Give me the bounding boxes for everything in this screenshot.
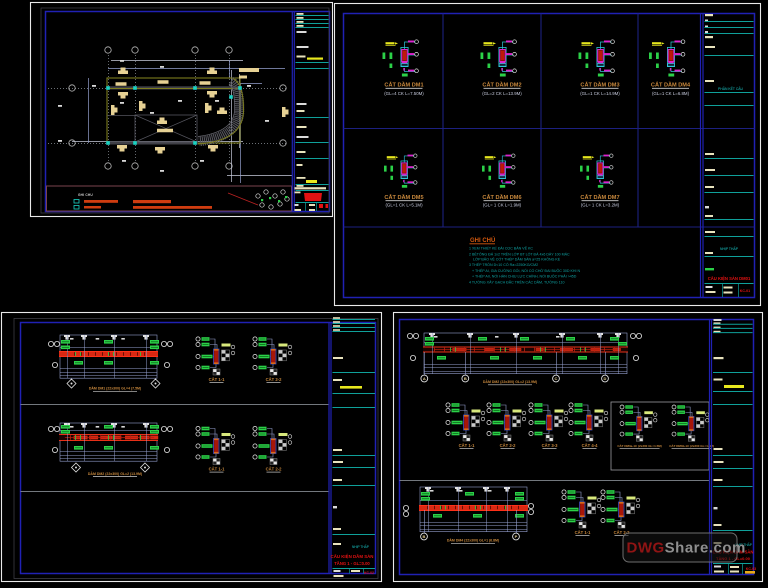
- svg-text:DẦM DM2 (22x300) GL=2 (13.9M): DẦM DM2 (22x300) GL=2 (13.9M): [88, 472, 142, 476]
- svg-text:P: P: [515, 534, 518, 539]
- svg-text:CẤU KIỆN DẦM SÀN: CẤU KIỆN DẦM SÀN: [331, 554, 374, 559]
- svg-text:CẮT DẦM DM4: CẮT DẦM DM4: [651, 81, 691, 89]
- svg-text:CẮT DẦM DM2: CẮT DẦM DM2: [482, 81, 521, 89]
- svg-text:(GL=2 CK L=13.9M): (GL=2 CK L=13.9M): [482, 91, 522, 96]
- svg-text:DWGShare.com: DWGShare.com: [627, 540, 746, 557]
- svg-text:KC-03: KC-03: [746, 567, 756, 571]
- svg-text:DẦM DM2 (22x300) GL=2 (13.9M): DẦM DM2 (22x300) GL=2 (13.9M): [483, 380, 537, 384]
- svg-text:+ THÉP AII, NỐI HÀN CHỊU LỰC C: + THÉP AII, NỐI HÀN CHỊU LỰC CHÍNH, NỐI …: [472, 274, 577, 279]
- svg-text:(GL=1 CK L=14.9M): (GL=1 CK L=14.9M): [580, 91, 620, 96]
- svg-text:DẦM DM4 (22x300) GL=1 (6.8M): DẦM DM4 (22x300) GL=1 (6.8M): [447, 539, 499, 543]
- svg-text:NHỊP THẤP: NHỊP THẤP: [352, 545, 369, 549]
- svg-text:CẮT DẦM DM3: CẮT DẦM DM3: [580, 81, 619, 89]
- svg-text:CẮT DM3a-1C (2x300 GL=1.5M): CẮT DM3a-1C (2x300 GL=1.5M): [617, 443, 661, 448]
- svg-text:CẮT 2-2: CẮT 2-2: [266, 467, 282, 472]
- svg-text:KC-01: KC-01: [740, 289, 750, 293]
- svg-text:A: A: [423, 376, 426, 381]
- svg-text:GHI CHÚ: GHI CHÚ: [470, 237, 495, 244]
- svg-text:GHI CHU: GHI CHU: [78, 193, 93, 197]
- svg-text:CẮT 3-3: CẮT 3-3: [542, 443, 558, 448]
- svg-text:C: C: [555, 376, 558, 381]
- svg-text:PHẦN KẾT CẤU: PHẦN KẾT CẤU: [718, 86, 744, 91]
- svg-text:CẮT DM3b-1C (2x300 GL=1.5M): CẮT DM3b-1C (2x300 GL=1.5M): [669, 443, 714, 448]
- svg-text:(GL= 1 CK L=3.2M): (GL= 1 CK L=3.2M): [581, 203, 620, 208]
- svg-text:CẮT 1-1: CẮT 1-1: [459, 443, 475, 448]
- svg-text:CẮT DẦM DM6: CẮT DẦM DM6: [482, 193, 521, 201]
- svg-text:DẦM DM1 (22x300) GL=4 (7.5M): DẦM DM1 (22x300) GL=4 (7.5M): [89, 387, 141, 391]
- svg-text:TẦNG 1 - GL=0.00: TẦNG 1 - GL=0.00: [334, 561, 370, 566]
- svg-text:2 BÊTÔNG ĐÁ 1x2 TRÊN LỚP BT L: 2 BÊTÔNG ĐÁ 1x2 TRÊN LỚP BT LÓT ĐÁ 4x6 D…: [469, 252, 570, 257]
- svg-text:CẮT DẦM DM5: CẮT DẦM DM5: [384, 193, 423, 201]
- svg-text:CẮT 1-1: CẮT 1-1: [209, 467, 225, 472]
- svg-text:CẮT 2-2: CẮT 2-2: [266, 377, 282, 382]
- svg-text:KC-02: KC-02: [364, 571, 374, 575]
- svg-text:B: B: [464, 376, 467, 381]
- svg-text:(GL= 1 CK L=1.9M): (GL= 1 CK L=1.9M): [483, 203, 522, 208]
- svg-text:NHỊP THẤP: NHỊP THẤP: [720, 247, 739, 251]
- svg-text:CẮT 1-1: CẮT 1-1: [209, 377, 225, 382]
- svg-text:B: B: [423, 534, 426, 539]
- svg-text:CẮT DẦM DM1: CẮT DẦM DM1: [384, 81, 423, 89]
- svg-text:LỚP BẢO VỆ CỐT THÉP DẦM SÀN a=: LỚP BẢO VỆ CỐT THÉP DẦM SÀN a=25 KHÔNG K…: [473, 257, 561, 262]
- svg-text:+ THÉP AI, GIA CƯỜNG GỐI, NỐI: + THÉP AI, GIA CƯỜNG GỐI, NỐI CỔ CHỜ ĐAI…: [472, 268, 580, 273]
- svg-text:CẤU KIỆN SÀN DM01: CẤU KIỆN SÀN DM01: [708, 276, 751, 281]
- svg-text:(GL=4 CK L=7.50M): (GL=4 CK L=7.50M): [384, 91, 424, 96]
- svg-text:CẮT DẦM DM7: CẮT DẦM DM7: [580, 193, 619, 201]
- svg-text:CẮT 4-4: CẮT 4-4: [582, 443, 598, 448]
- svg-text:1 XEM THIẾT KẾ ĐÀI CỌC BẢN VẼ: 1 XEM THIẾT KẾ ĐÀI CỌC BẢN VẼ KC: [469, 246, 533, 251]
- svg-text:4 TƯỜNG XÂY GẠCH ĐẶC TRÊN CÁC: 4 TƯỜNG XÂY GẠCH ĐẶC TRÊN CÁC DẦM, TƯỜNG…: [469, 280, 564, 285]
- svg-text:CẮT 2-2: CẮT 2-2: [500, 443, 516, 448]
- svg-text:D: D: [604, 376, 607, 381]
- svg-text:CẮT 1-1: CẮT 1-1: [575, 530, 591, 535]
- svg-text:(GL=1 CK L=6.8M): (GL=1 CK L=6.8M): [652, 91, 690, 96]
- svg-text:3 THÉP TRÒN D<10 CÓ Ra=2250KG: 3 THÉP TRÒN D<10 CÓ Ra=2250KG/CM2: [469, 262, 538, 267]
- svg-text:(GL=1 CK L=5.1M): (GL=1 CK L=5.1M): [385, 203, 423, 208]
